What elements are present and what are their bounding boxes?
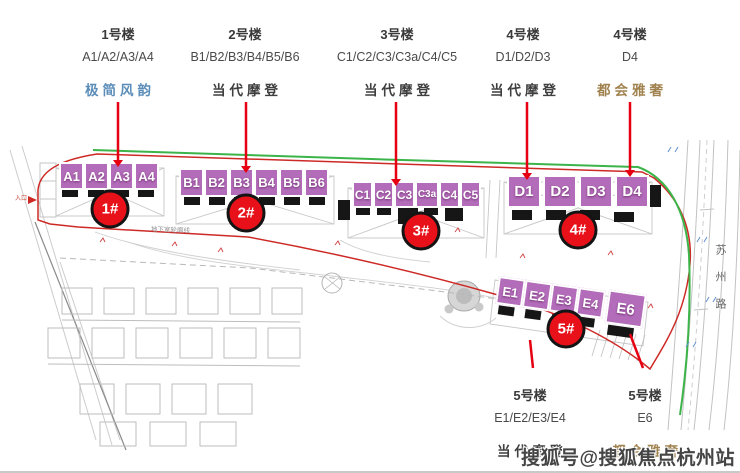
building-name: 4号楼 (545, 24, 715, 43)
unit-row-b: B1 B2 B3 B4 B5 B6 (179, 168, 329, 197)
unit-box-c3: C3 (394, 181, 415, 208)
unit-box-b5: B5 (279, 168, 304, 197)
watermark-text: 搜狐号@搜狐焦点杭州站 (521, 443, 735, 470)
unit-row-c: C1 C2 C3 C3a C4 C5 (352, 181, 481, 208)
unit-box-c4: C4 (439, 181, 460, 208)
unit-box-e2: E2 (522, 280, 553, 311)
unit-box-c1: C1 (352, 181, 373, 208)
unit-box-e1: E1 (495, 276, 526, 307)
building-name: 5号楼 (560, 385, 730, 404)
unit-box-a3: A3 (109, 162, 134, 190)
unit-box-b4: B4 (254, 168, 279, 197)
header-column-2: 2号楼 B1/B2/B3/B4/B5/B6 当代摩登 (160, 24, 330, 99)
unit-row-d: D1 D2 D3 D4 (507, 175, 649, 208)
unit-row-a: A1 A2 A3 A4 (59, 162, 159, 190)
unit-box-b6: B6 (304, 168, 329, 197)
building-name: 2号楼 (160, 24, 330, 43)
unit-box-c2: C2 (373, 181, 394, 208)
unit-box-a1: A1 (59, 162, 84, 190)
unit-box-b3: B3 (229, 168, 254, 197)
building-units: D4 (545, 50, 715, 64)
unit-box-c5: C5 (460, 181, 481, 208)
unit-box-c3a: C3a (415, 181, 439, 208)
unit-box-d2: D2 (543, 175, 577, 208)
underground-outline-label: 地下室轮廓线 (151, 223, 190, 234)
unit-box-e4: E4 (575, 287, 606, 318)
site-plan-infographic: 1号楼 A1/A2/A3/A4 极简风韵 2号楼 B1/B2/B3/B4/B5/… (0, 0, 740, 473)
unit-box-a2: A2 (84, 162, 109, 190)
unit-box-b2: B2 (204, 168, 229, 197)
road-name-label: 苏州路 (712, 244, 728, 325)
building-style: 当代摩登 (160, 79, 330, 99)
entrance-label: 入口 (15, 193, 27, 202)
unit-box-a4: A4 (134, 162, 159, 190)
marker-building-5: 5# (547, 310, 586, 349)
building-style: 都会雅奢 (545, 79, 715, 99)
unit-box-b1: B1 (179, 168, 204, 197)
unit-box-d3: D3 (579, 175, 613, 208)
unit-box-d1: D1 (507, 175, 541, 208)
marker-building-1: 1# (91, 190, 130, 229)
building-units: B1/B2/B3/B4/B5/B6 (160, 50, 330, 64)
marker-building-4: 4# (559, 211, 598, 250)
unit-box-d4: D4 (615, 175, 649, 208)
unit-box-e6: E6 (604, 289, 646, 328)
marker-building-3: 3# (402, 212, 441, 251)
header-column-5: 4号楼 D4 都会雅奢 (545, 24, 715, 99)
marker-building-2: 2# (227, 194, 266, 233)
building-units: E6 (560, 411, 730, 425)
